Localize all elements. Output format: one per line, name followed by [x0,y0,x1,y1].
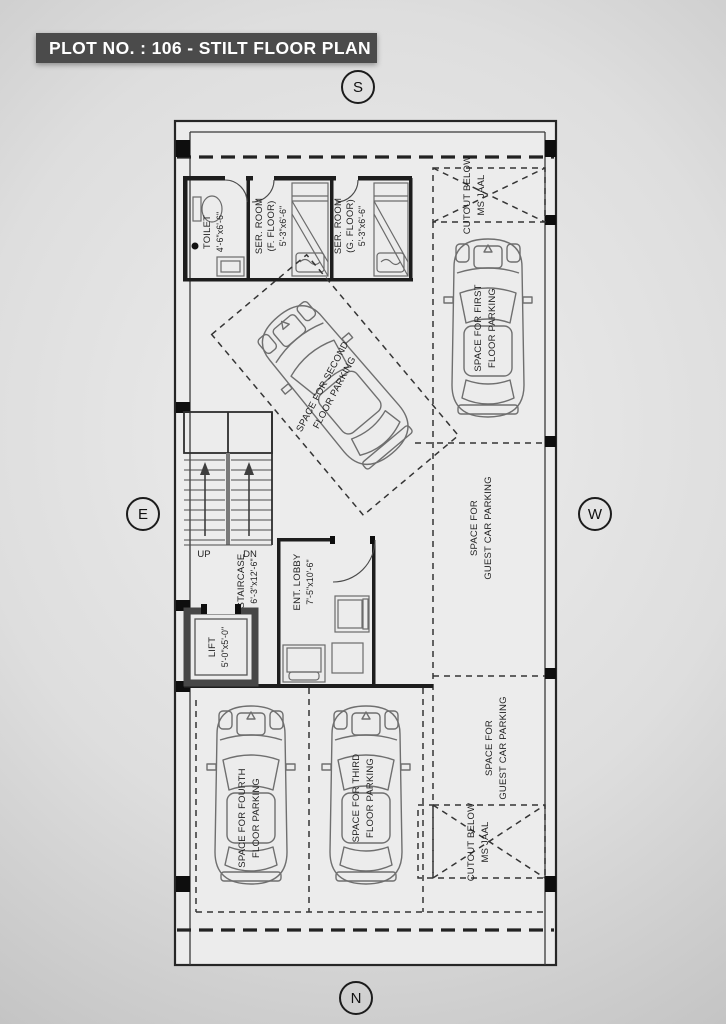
ser-room-g-label: SER. ROOM [333,198,344,254]
parking-first-label-2: FLOOR PARKING [487,288,498,368]
parking-fourth-label-1: SPACE FOR FOURTH [237,768,248,867]
parking-third-label-1: SPACE FOR THIRD [351,754,362,843]
guest-upper-label-1: SPACE FOR [469,500,480,556]
parking-third-label-2: FLOOR PARKING [365,758,376,838]
parking-first-label-1: SPACE FOR FIRST [473,284,484,371]
toilet-dims: 4'-6"x6'-6" [215,212,225,253]
ser-room-g-dims: 5'-3"x6'-6" [357,206,367,247]
staircase-dims: 6'-3"x12'-6" [249,558,259,604]
staircase-label: STAIRCASE [236,554,247,609]
ser-room-g-floor: (G. FLOOR) [345,199,356,253]
ser-room-f-floor: (F. FLOOR) [266,200,277,251]
ser-room-f-dims: 5'-3"x6'-6" [278,206,288,247]
stair-up-label: UP [197,549,210,560]
toilet-label: TOILET [202,215,213,249]
cutout-top-label-2: MS JAAL [476,175,487,216]
cutout-bottom-label-2: MS JAAL [480,822,491,863]
lobby-label: ENT. LOBBY [292,553,303,610]
guest-lower-label-1: SPACE FOR [484,720,495,776]
floor-plan-page: PLOT NO. : 106 - STILT FLOOR PLAN S E W … [0,0,726,1024]
floor-plan-drawing: TOILET 4'-6"x6'-6" SER. ROOM (F. FLOOR) … [0,0,726,1024]
lift-dims: 5'-0"x5'-0" [220,627,230,668]
parking-fourth-label-2: FLOOR PARKING [251,778,262,858]
cutout-bottom-label-1: CUTOUT BELOW [466,803,477,882]
cutout-top-label-1: CUTOUT BELOW [462,156,473,235]
lift-label: LIFT [207,637,218,657]
floor-drain-icon [192,243,199,250]
guest-lower-label-2: GUEST CAR PARKING [498,696,509,799]
lobby-dims: 7'-5"x10'-6" [305,559,315,605]
ser-room-f-label: SER. ROOM [254,198,265,254]
guest-upper-label-2: GUEST CAR PARKING [483,476,494,579]
